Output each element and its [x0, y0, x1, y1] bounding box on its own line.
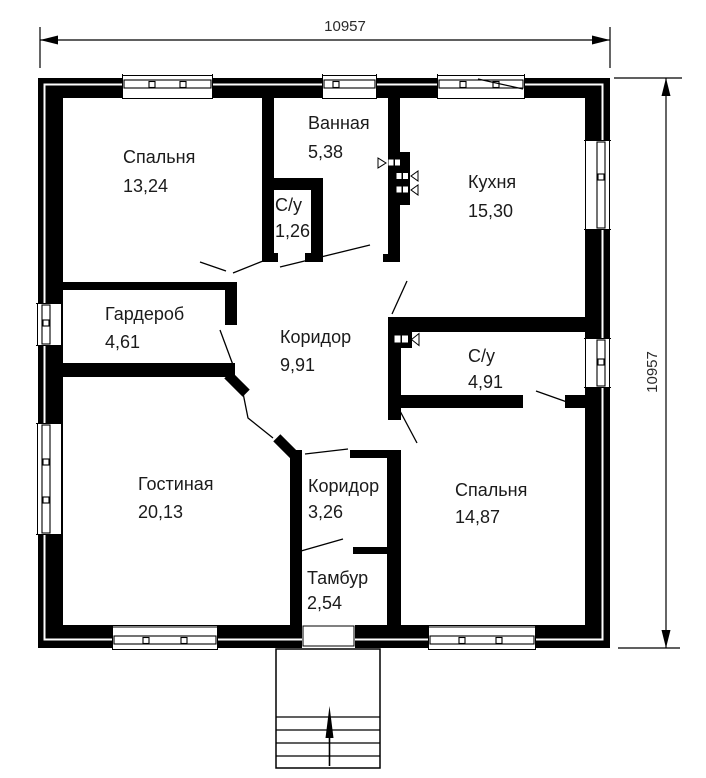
room-label-bedroom1: Спальня 13,24	[123, 147, 195, 196]
room-label-kitchen: Кухня 15,30	[468, 172, 516, 221]
svg-text:1,26: 1,26	[275, 221, 310, 241]
room-label-corridor-main: Коридор 9,91	[280, 327, 351, 375]
door-leaf-bedroom2	[400, 411, 417, 443]
dimension-top: 10957	[40, 18, 610, 68]
wall-wc1-right	[311, 190, 323, 253]
window-top-bathroom	[322, 74, 377, 99]
room-label-living: Гостиная 20,13	[138, 474, 214, 522]
svg-text:С/у: С/у	[468, 346, 495, 366]
svg-text:Тамбур: Тамбур	[307, 568, 368, 588]
svg-text:9,91: 9,91	[280, 355, 315, 375]
wall-bedroom1-bath	[262, 98, 274, 253]
door-leaf-tambour	[301, 539, 343, 551]
wall-tambour-top	[353, 547, 401, 554]
wall-chamfer-jamb	[273, 434, 298, 459]
floor-plan-drawing: 10957 10957 Спальня 13,24 Ванная 5,38 С/…	[0, 0, 706, 778]
window-right-kitchen	[584, 140, 611, 230]
door-leaf-bedroom1	[200, 262, 226, 271]
window-bottom-living	[112, 626, 218, 651]
svg-text:С/у: С/у	[275, 195, 302, 215]
svg-text:2,54: 2,54	[307, 593, 342, 613]
svg-text:Спальня: Спальня	[455, 480, 527, 500]
room-label-wc2: С/у 4,91	[468, 346, 503, 392]
svg-text:Гардероб: Гардероб	[105, 304, 184, 324]
vent-arrow-icon	[411, 171, 418, 181]
floor-plan-canvas: 10957 10957 Спальня 13,24 Ванная 5,38 С/…	[0, 0, 706, 778]
dim-arrow-right	[592, 36, 610, 45]
svg-text:Гостиная: Гостиная	[138, 474, 214, 494]
svg-text:Кухня: Кухня	[468, 172, 516, 192]
window-left-wardrobe	[36, 303, 62, 346]
room-label-tambour: Тамбур 2,54	[307, 568, 368, 613]
dimension-top-value: 10957	[324, 18, 366, 35]
wall-wardrobe-top	[58, 282, 235, 290]
vent-arrow-icon	[412, 334, 420, 346]
dimension-right: 10957	[614, 78, 682, 648]
door-leaf-wc2	[536, 391, 567, 402]
wall-inner-white-line	[45, 85, 603, 640]
wall-living-right	[290, 450, 302, 625]
door-leaf-wc1	[233, 261, 263, 273]
wall-jamb	[565, 395, 585, 408]
wall-corridor3-top	[350, 450, 401, 458]
svg-text:Коридор: Коридор	[280, 327, 351, 347]
wall-corridor-right-lower	[387, 452, 401, 625]
window-bottom-bedroom2	[428, 626, 536, 651]
door-leaf-living	[243, 393, 273, 438]
dim-arrow-left	[40, 36, 58, 45]
wall-wc1-top	[274, 178, 323, 190]
door-leaf-bathroom	[280, 245, 370, 267]
svg-text:Коридор: Коридор	[308, 476, 379, 496]
wall-wardrobe-bottom	[58, 363, 235, 377]
wall-chamfer-jamb	[224, 371, 249, 396]
dimension-right-value: 10957	[644, 351, 661, 393]
entrance-door-opening	[302, 623, 355, 651]
porch	[276, 649, 380, 768]
room-label-wc1: С/у 1,26	[275, 195, 310, 241]
vent-arrow-icon	[411, 185, 418, 195]
vent-arrow-icon	[378, 158, 386, 168]
svg-text:20,13: 20,13	[138, 502, 183, 522]
porch-outline	[276, 649, 380, 768]
room-label-bedroom2: Спальня 14,87	[455, 480, 527, 527]
room-label-corridor-small: Коридор 3,26	[308, 476, 379, 522]
wall-wardrobe-right	[225, 282, 237, 325]
room-label-wardrobe: Гардероб 4,61	[105, 304, 184, 352]
svg-text:4,91: 4,91	[468, 372, 503, 392]
window-top-bedroom	[122, 74, 213, 99]
door-leaf-corridor3	[305, 449, 348, 454]
wall-jamb	[383, 254, 400, 262]
window-top-kitchen	[437, 74, 525, 99]
window-right-wc	[584, 338, 611, 388]
svg-text:13,24: 13,24	[123, 176, 168, 196]
dim-arrow-down	[662, 630, 671, 648]
dim-arrow-up	[662, 78, 671, 96]
room-label-bathroom: Ванная 5,38	[308, 113, 370, 162]
window-left-living	[36, 423, 62, 535]
vent-channels-bath-kitchen	[378, 158, 418, 195]
svg-text:3,26: 3,26	[308, 502, 343, 522]
svg-text:14,87: 14,87	[455, 507, 500, 527]
svg-text:15,30: 15,30	[468, 201, 513, 221]
wall-wc2-bottom	[388, 395, 523, 408]
svg-text:4,61: 4,61	[105, 332, 140, 352]
wall-kitchen-bottom	[388, 317, 585, 332]
svg-text:Спальня: Спальня	[123, 147, 195, 167]
svg-text:5,38: 5,38	[308, 142, 343, 162]
wall-jamb	[262, 253, 278, 262]
door-leaf-wardrobe	[220, 330, 233, 365]
stairs-up-arrow-icon	[326, 706, 334, 766]
svg-text:Ванная: Ванная	[308, 113, 370, 133]
door-leaf-kitchen	[392, 281, 407, 314]
